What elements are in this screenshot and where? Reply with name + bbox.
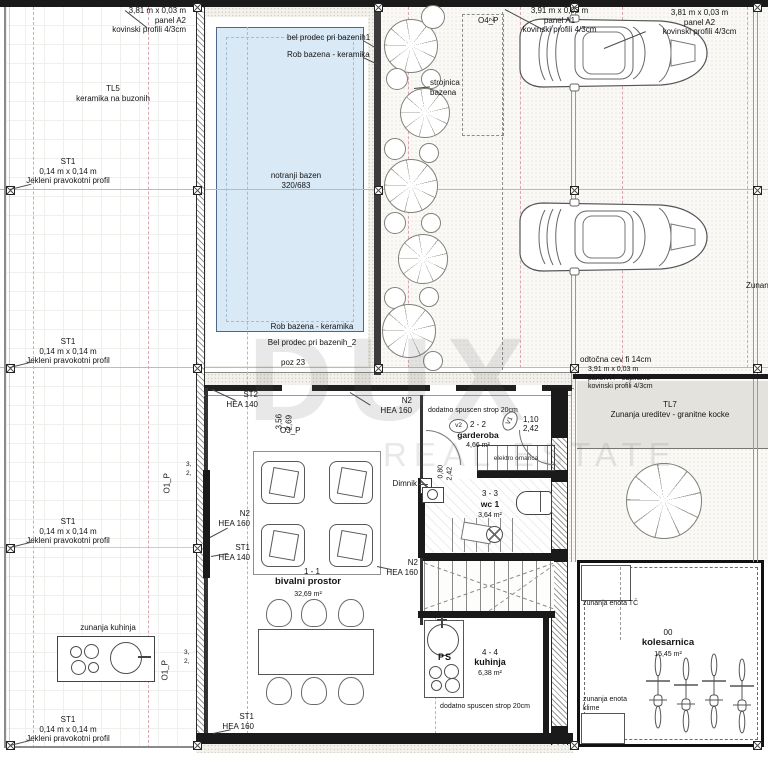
st1-code: ST1: [12, 517, 124, 527]
v1-dim-242: 2,42: [523, 424, 539, 434]
o1p-dim: 3,: [186, 461, 191, 469]
leader-line: [419, 484, 428, 485]
terrace-south-line: [4, 746, 198, 748]
panel-a4-label: 3,91 m x 0,03 m panel A4 - odpiralno kov…: [588, 366, 653, 392]
ac-unit-box: [581, 713, 625, 744]
tree-icon: [421, 5, 445, 29]
tree-icon: [419, 143, 439, 163]
odtocna-label: odtočna cev fi 14cm: [580, 355, 651, 365]
beam-profile: HEA 160: [368, 406, 412, 416]
ac-label: zunanja enota klime: [583, 696, 627, 713]
beam-profile: HEA 160: [374, 568, 418, 578]
tree-icon: [421, 213, 441, 233]
pool-note-bot2: Bel prodec pri bazenih_2: [262, 338, 362, 348]
tree-icon: [384, 138, 406, 160]
burner: [429, 666, 442, 679]
strojnica-label: strojnica bazena: [430, 78, 460, 97]
sofa-cushion: [269, 530, 299, 561]
kitchen-area: 6,38 m²: [462, 670, 518, 679]
sofa: [329, 461, 373, 504]
tl7-desc: Zunanja ureditev - granitne kocke: [600, 410, 740, 420]
tl7-label: TL7 Zunanja ureditev - granitne kocke: [600, 400, 740, 419]
st1-140-beam-label: ST1 HEA 140: [206, 543, 250, 562]
grid-line-h3: [0, 547, 206, 548]
axis-a: [33, 7, 34, 748]
burner: [444, 664, 459, 679]
beam-profile: HEA 160: [210, 722, 254, 732]
o4p-dim: 2,: [489, 16, 497, 21]
n2-beam-label: N2 HEA 160: [374, 558, 418, 577]
column-marker: [570, 741, 579, 750]
bicycle-icon: [701, 653, 727, 731]
panel-profile: kovinski profili 4/3cm: [588, 383, 653, 392]
wall-terrace-east: [196, 7, 205, 748]
panel-profile: kovinski profili 4/3cm: [512, 25, 607, 35]
st1-profile: Jekleni pravokotni profil: [12, 734, 124, 744]
wall-east-pier4: [551, 726, 568, 744]
panel-name: panel A2: [60, 16, 186, 26]
panel-name: panel A4 - odpiralno: [588, 375, 653, 384]
stair-turn-circle: [486, 526, 503, 543]
dimnik-label: Dimnik: [385, 479, 417, 489]
outdoor-faucet: [138, 656, 151, 658]
tl7-code: TL7: [600, 400, 740, 410]
beam-code: ST1: [206, 543, 250, 553]
beam-profile: HEA 160: [206, 519, 250, 529]
v2-tag-text: v2: [455, 422, 462, 429]
st1-dim: 0,14 m x 0,14 m: [12, 527, 124, 537]
panel-a2-right-label: 3,81 m x 0,03 m panel A2 kovinski profil…: [652, 8, 747, 37]
st1-dim: 0,14 m x 0,14 m: [12, 167, 124, 177]
garderoba-area: 4,66 m²: [440, 442, 516, 451]
column-marker: [753, 3, 762, 12]
n2-beam-label: N2 HEA 160: [206, 509, 250, 528]
st1-label-block: ST1 0,14 m x 0,14 m Jekleni pravokotni p…: [12, 157, 124, 186]
panel-profile: kovinski profili 4/3cm: [60, 25, 186, 35]
heatpump-unit-box: [581, 565, 631, 601]
tl5-code: TL5: [58, 84, 168, 94]
tree-icon: [384, 159, 438, 213]
st1-label-block: ST1 0,14 m x 0,14 m Jekleni pravokotni p…: [12, 337, 124, 366]
beam-profile: HEA 140: [206, 553, 250, 563]
column-marker: [753, 364, 762, 373]
tree-icon: [398, 234, 448, 284]
beam-code: N2: [374, 558, 418, 568]
outdoor-sink: [110, 642, 142, 674]
panel-a2-left-label: 3,81 m x 0,03 m panel A2 kovinski profil…: [60, 6, 186, 35]
floor-plan: DUX REAL ESTATE 3,81 m x 0,03 m panel A2…: [0, 0, 768, 758]
column-marker: [570, 364, 579, 373]
section-3-3: 3 - 3: [460, 489, 520, 499]
wall-left-edge: [4, 7, 6, 748]
bikeroom-name: kolesarnica: [628, 638, 708, 648]
burner: [84, 644, 99, 659]
wc-area: 3,64 m²: [460, 512, 520, 521]
door-dim-242: 2,42: [447, 467, 456, 481]
o3p-label: O3_P: [280, 426, 300, 436]
bicycle-icon: [729, 658, 755, 736]
wall-building-south-hatch: [196, 744, 573, 753]
st1-label-block: ST1 0,14 m x 0,14 m Jekleni pravokotni p…: [12, 517, 124, 546]
axis-g: [747, 7, 748, 368]
column-marker: [374, 364, 383, 373]
st1-code: ST1: [12, 337, 124, 347]
v1-tag-text: V1: [505, 416, 515, 426]
beam-code: ST1: [210, 712, 254, 722]
beam-code: ST2: [210, 390, 258, 400]
column-marker: [193, 741, 202, 750]
sofa: [261, 524, 305, 567]
pool-poz-label: poz 23: [281, 358, 305, 368]
panel-name: panel A1: [512, 16, 607, 26]
dining-table: [258, 629, 374, 675]
o1p-label: O1_P: [163, 473, 173, 493]
column-marker: [374, 186, 383, 195]
panel-dim: 3,91 m x 0,03 m: [512, 6, 607, 16]
pool-note-bot1: Rob bazena - keramika: [262, 322, 362, 332]
st1-profile: Jekleni pravokotni profil: [12, 356, 124, 366]
panel-dim: 3,91 m x 0,03 m: [588, 366, 653, 375]
st1-dim: 0,14 m x 0,14 m: [12, 725, 124, 735]
dodatno-strop-label: dodatno spuscen strop 20cm: [430, 703, 540, 712]
st1-dim: 0,14 m x 0,14 m: [12, 347, 124, 357]
dining-chair: [266, 677, 292, 705]
st1-profile: Jekleni pravokotni profil: [12, 176, 124, 186]
washbasin-bowl: [427, 489, 438, 500]
tree-icon: [626, 463, 702, 539]
burner: [431, 680, 442, 691]
column-marker: [193, 3, 202, 12]
bikeroom-area: 15,45 m²: [640, 651, 696, 660]
column-marker: [193, 364, 202, 373]
o1p-label: O1_P: [161, 660, 171, 680]
st2-beam-label: ST2 HEA 140: [210, 390, 258, 409]
bicycle-icon: [673, 657, 699, 735]
strojnica-box: [462, 14, 504, 136]
column-marker: [753, 186, 762, 195]
burner: [70, 646, 82, 658]
ps-label: PS: [438, 653, 452, 663]
sofa: [261, 461, 305, 504]
panel-dim: 3,81 m x 0,03 m: [60, 6, 186, 16]
kitchen-faucet-bar: [437, 619, 447, 621]
burner: [445, 678, 460, 693]
wc-name: wc 1: [460, 500, 520, 510]
burner: [88, 662, 99, 673]
kitchen-name: kuhinja: [462, 658, 518, 668]
o1p-dim: 2,: [184, 658, 189, 666]
tree-icon: [419, 287, 439, 307]
burner: [71, 660, 86, 675]
column-marker: [570, 186, 579, 195]
sofa: [329, 524, 373, 567]
panel-dim: 3,81 m x 0,03 m: [652, 8, 747, 18]
pool-name: notranji bazen: [246, 171, 346, 181]
o1p-dim: 2,: [186, 470, 191, 478]
outdoor-kitchen-label: zunanja kuhinja: [60, 623, 156, 633]
st1-label-block: ST1 0,14 m x 0,14 m Jekleni pravokotni p…: [12, 715, 124, 744]
strojnica-line1: strojnica: [430, 78, 460, 88]
living-name: bivalni prostor: [258, 577, 358, 587]
strojnica-line2: bazena: [430, 88, 460, 98]
tl5-label: TL5 keramika na buzonih: [58, 84, 168, 103]
garderoba-name: garderoba: [440, 431, 516, 441]
beam-profile: HEA 140: [210, 400, 258, 410]
pool-note-top2: Rob bazena - keramika: [287, 50, 370, 60]
tree-icon: [386, 68, 408, 90]
dining-chair: [301, 599, 327, 627]
dining-chair: [338, 599, 364, 627]
ac-label-line2: klime: [583, 705, 627, 714]
wall-kitchen-east: [543, 616, 549, 734]
panel-a1-label: 3,91 m x 0,03 m panel A1 kovinski profil…: [512, 6, 607, 35]
o1p-dim: 3,: [184, 649, 189, 657]
column-marker: [753, 741, 762, 750]
car-icon: [513, 198, 713, 276]
column-marker: [193, 544, 202, 553]
sofa-cushion: [337, 467, 367, 498]
st1-160-beam-label: ST1 HEA 160: [210, 712, 254, 731]
heatpump-label: zunanja enota TČ: [583, 600, 638, 609]
stair-direction-lines: [424, 559, 554, 613]
dining-chair: [338, 677, 364, 705]
panel-name: panel A2: [652, 18, 747, 28]
living-area: 32,69 m²: [258, 591, 358, 600]
dining-chair: [301, 677, 327, 705]
elektro-label: elektro omarica: [477, 455, 555, 463]
column-marker: [374, 3, 383, 12]
bicycle-icon: [645, 653, 671, 731]
section-2-2: 2 - 2: [470, 420, 486, 430]
toilet-tank-line: [540, 492, 541, 512]
wall-left-edge-inner: [9, 7, 10, 748]
n2-beam-label: N2 HEA 160: [368, 396, 412, 415]
column-marker: [193, 186, 202, 195]
panel-profile: kovinski profili 4/3cm: [652, 27, 747, 37]
st1-profile: Jekleni pravokotni profil: [12, 536, 124, 546]
beam-code: N2: [206, 509, 250, 519]
st1-code: ST1: [12, 715, 124, 725]
pool-name-label: notranji bazen 320/683: [246, 171, 346, 190]
door-dim-080: 0,80: [438, 465, 447, 479]
sofa-cushion: [337, 530, 367, 561]
tl5-desc: keramika na buzonih: [58, 94, 168, 104]
wall-building-south: [196, 733, 573, 744]
sofa-cushion: [269, 467, 299, 498]
toilet: [516, 491, 552, 515]
st1-code: ST1: [12, 157, 124, 167]
ac-label-line1: zunanja enota: [583, 696, 627, 705]
dining-chair: [266, 599, 292, 627]
pool-note-top1: bel prodec pri bazenih1: [287, 33, 370, 43]
zunanja-edge-label: Zunanja: [746, 281, 768, 291]
pool-size: 320/683: [246, 181, 346, 191]
tree-icon: [384, 212, 406, 234]
beam-code: N2: [368, 396, 412, 406]
